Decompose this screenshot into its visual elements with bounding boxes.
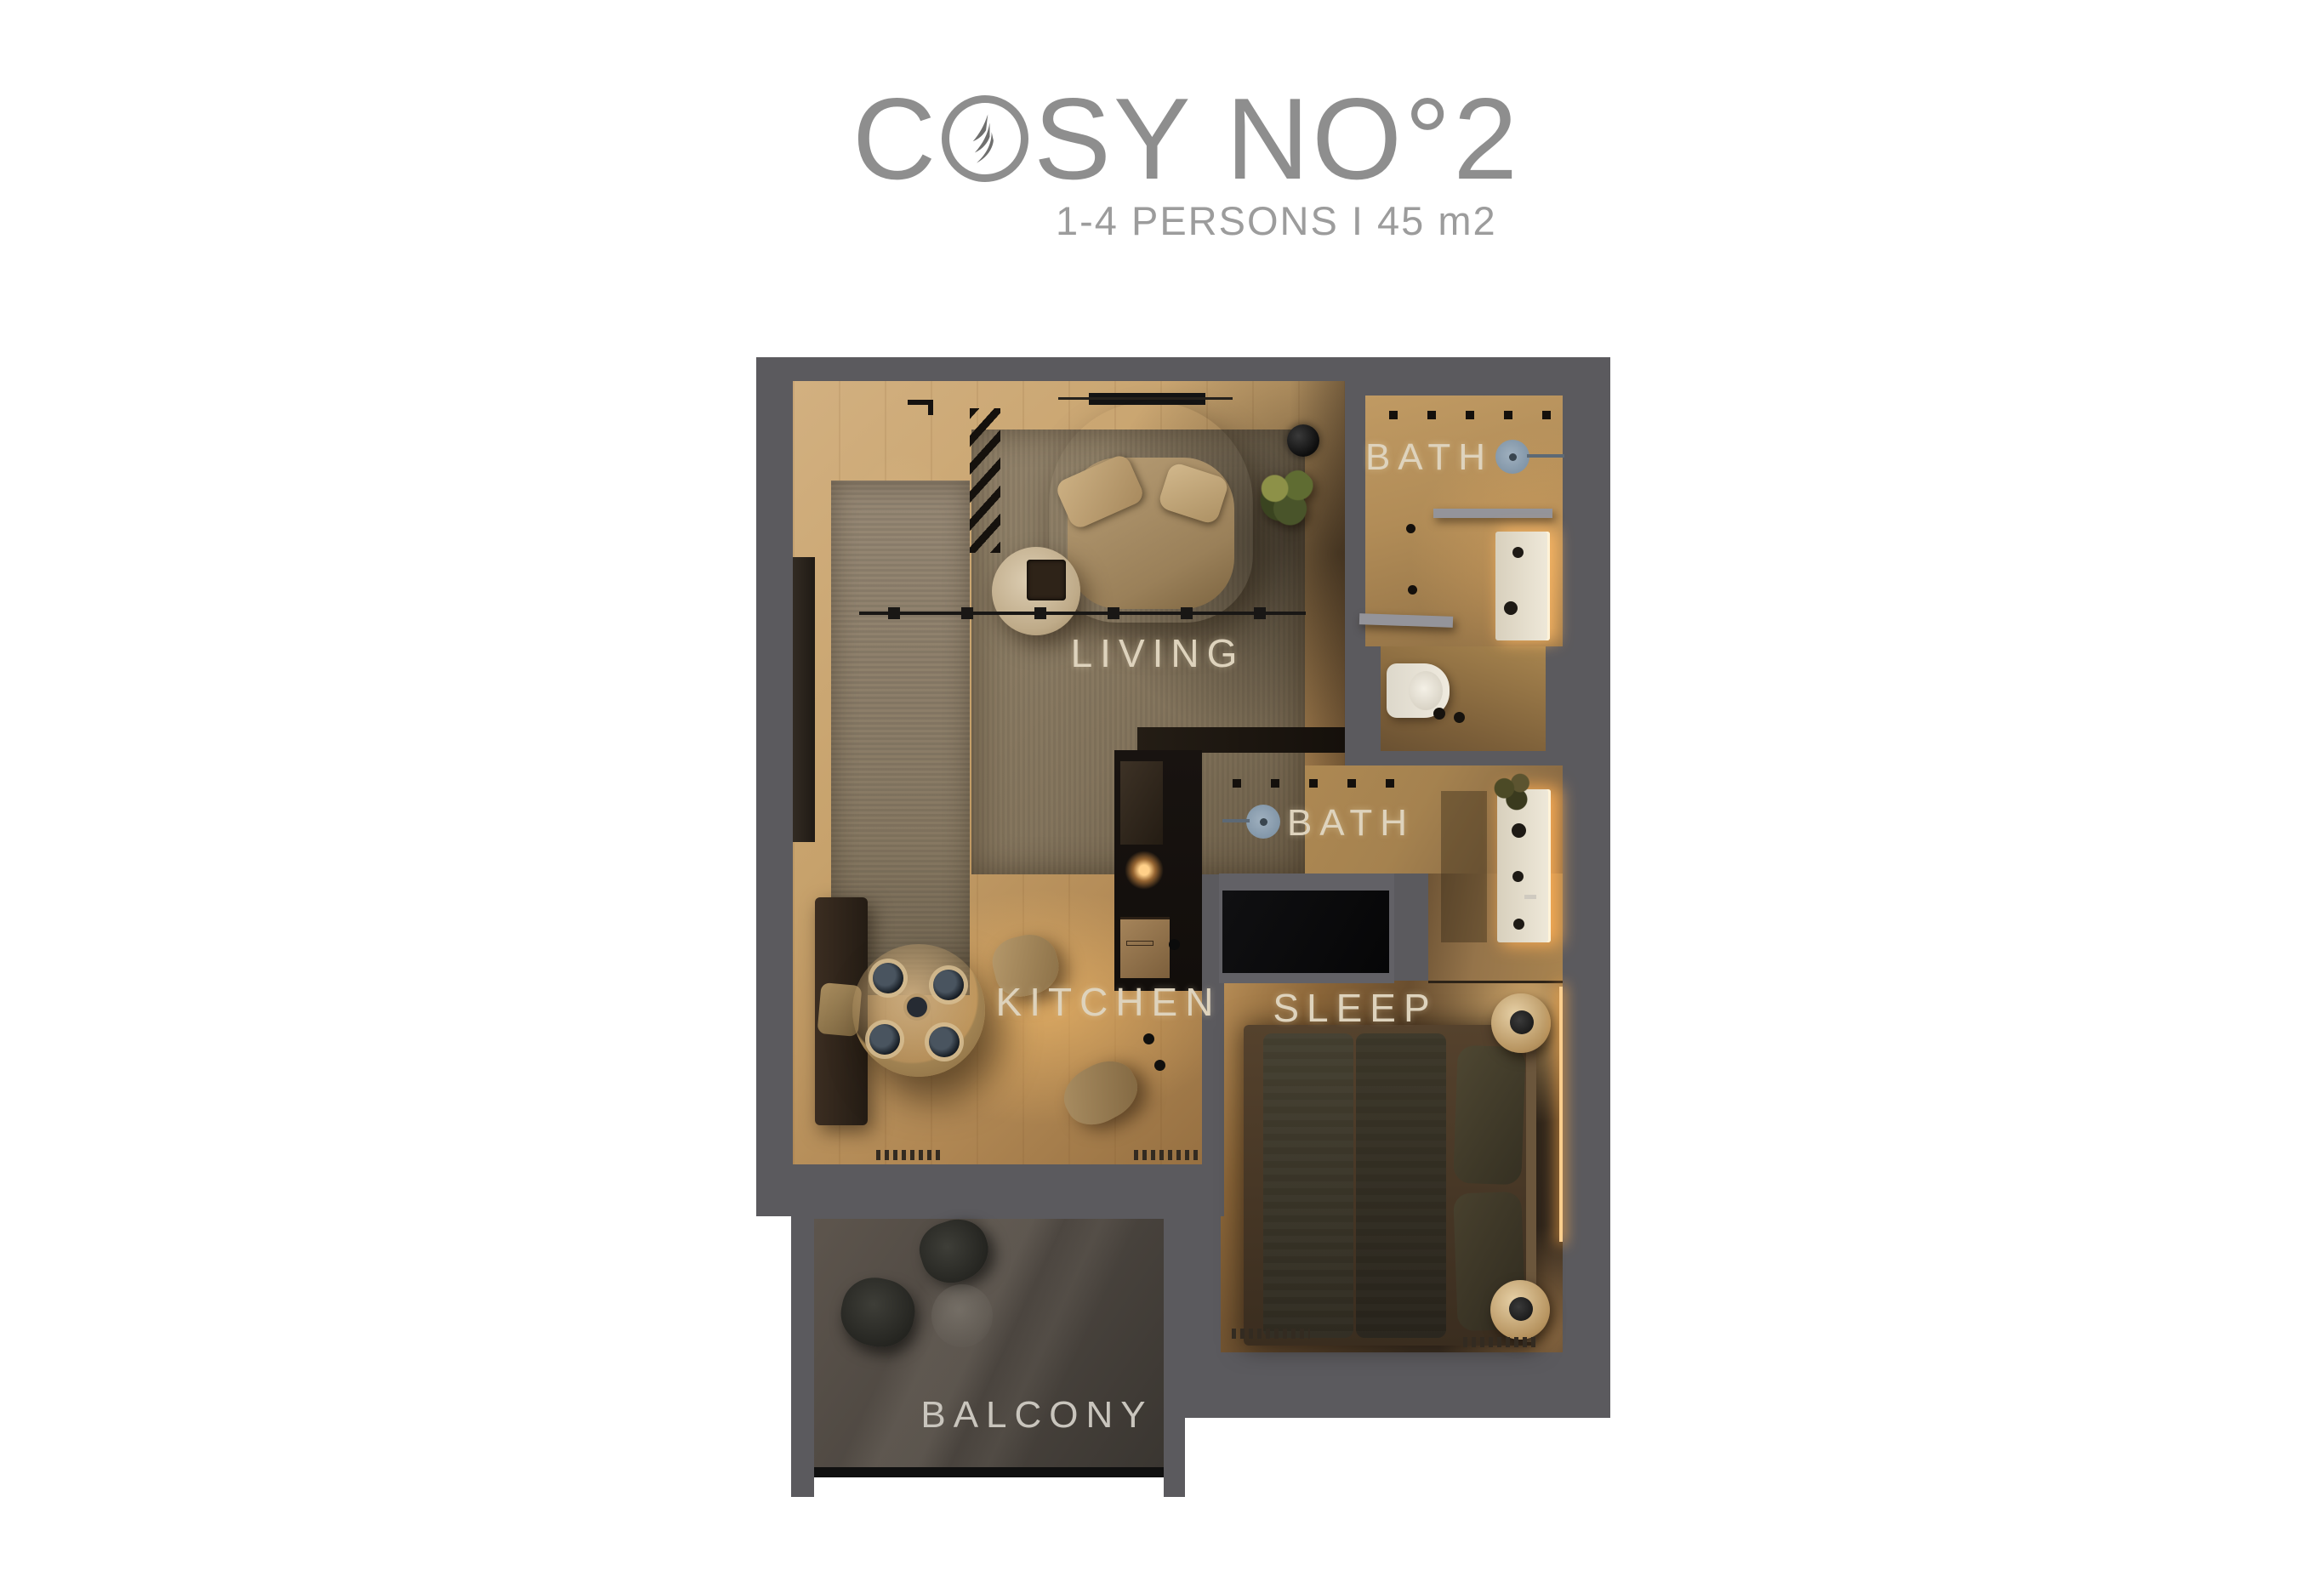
- room-label-kitchen: KITCHEN: [996, 979, 1222, 1025]
- sink-dot: [1512, 547, 1524, 558]
- kitchen-drawer-unit: [1120, 917, 1170, 978]
- bird-feather-icon: [963, 111, 1007, 167]
- shower-arm: [1527, 454, 1564, 458]
- tv-sideboard: [793, 557, 815, 842]
- place-setting: [869, 1024, 900, 1055]
- sink-dot: [1512, 823, 1526, 838]
- room-label-bath-lower: BATH: [1287, 802, 1415, 845]
- floor-spot: [1143, 1033, 1154, 1044]
- dining-table: [852, 944, 985, 1077]
- sink-dot: [1512, 871, 1524, 882]
- bath-shelf: [1433, 509, 1552, 518]
- kitchen-counter: [1137, 727, 1345, 753]
- coffee-table-tray: [1027, 560, 1066, 600]
- door-threshold: [1428, 981, 1563, 983]
- sink-dot: [1513, 919, 1524, 930]
- doormat: [1232, 1329, 1310, 1339]
- door-swing-mark: [908, 400, 933, 415]
- kitchenette-unit: [1114, 750, 1202, 991]
- spotlight-row: [1233, 779, 1394, 788]
- place-setting: [933, 970, 964, 1000]
- dried-plant: [1490, 771, 1539, 815]
- balcony-wall-cut: [814, 1477, 1164, 1497]
- balcony-table: [931, 1284, 993, 1347]
- brand-logo-o: [942, 95, 1028, 182]
- page-subtitle: 1-4 PERSONS I 45 m2: [1056, 197, 1497, 244]
- place-setting: [873, 963, 903, 993]
- shower-head-icon: [1246, 805, 1280, 839]
- floor-spot: [1154, 1060, 1165, 1071]
- potted-plant: [1256, 467, 1318, 528]
- room-label-bath-top: BATH: [1365, 436, 1493, 479]
- shower-head-icon: [1495, 440, 1529, 474]
- doormat: [1463, 1337, 1540, 1347]
- room-label-balcony: BALCONY: [920, 1394, 1153, 1437]
- sink-dot: [1504, 601, 1518, 615]
- floor-plan: LIVING BATH BATH KITCHEN SLEEP BALCONY: [756, 357, 1610, 1514]
- floor-spot: [1454, 712, 1465, 723]
- wardrobe: [1222, 891, 1389, 973]
- bed-pillow: [1453, 1045, 1526, 1186]
- bed-duvet: [1356, 1033, 1446, 1338]
- nightstand: [1491, 993, 1551, 1053]
- spotlight-row: [1389, 411, 1551, 419]
- place-setting: [929, 1027, 960, 1057]
- bench-cushion: [815, 904, 866, 976]
- title-rest: SY NO°2: [1034, 81, 1520, 196]
- ceiling-light-track: [859, 612, 1306, 615]
- table-centerpiece: [907, 997, 927, 1017]
- faucet: [1524, 895, 1536, 899]
- bath-mat: [1441, 791, 1487, 942]
- room-label-sleep: SLEEP: [1273, 985, 1437, 1031]
- floor-spot: [1408, 585, 1417, 595]
- doormat: [876, 1150, 943, 1160]
- doormat: [1134, 1150, 1200, 1160]
- bath-vanity: [1495, 532, 1550, 640]
- floor-spot: [1433, 708, 1445, 720]
- side-lamp-table: [1287, 424, 1319, 457]
- floor-plan-page: C SY NO°2 1-4 PERSONS I 45 m2: [0, 0, 2324, 1582]
- bed-duvet: [1263, 1033, 1353, 1338]
- led-strip: [1559, 987, 1563, 1242]
- kitchen-cabinet: [1120, 761, 1163, 845]
- curtain-rail: [1058, 397, 1233, 400]
- under-cabinet-light: [1125, 851, 1164, 890]
- title-prefix: C: [852, 81, 938, 196]
- shower-arm: [1222, 819, 1250, 822]
- room-label-living: LIVING: [1071, 630, 1245, 676]
- zigzag-shelf: [970, 408, 1000, 553]
- balcony-railing: [814, 1467, 1164, 1477]
- page-title: C SY NO°2: [852, 83, 1520, 194]
- kitchen-sink-dot: [1169, 939, 1180, 950]
- nightstand: [1490, 1280, 1550, 1340]
- floor-spot: [1406, 524, 1415, 533]
